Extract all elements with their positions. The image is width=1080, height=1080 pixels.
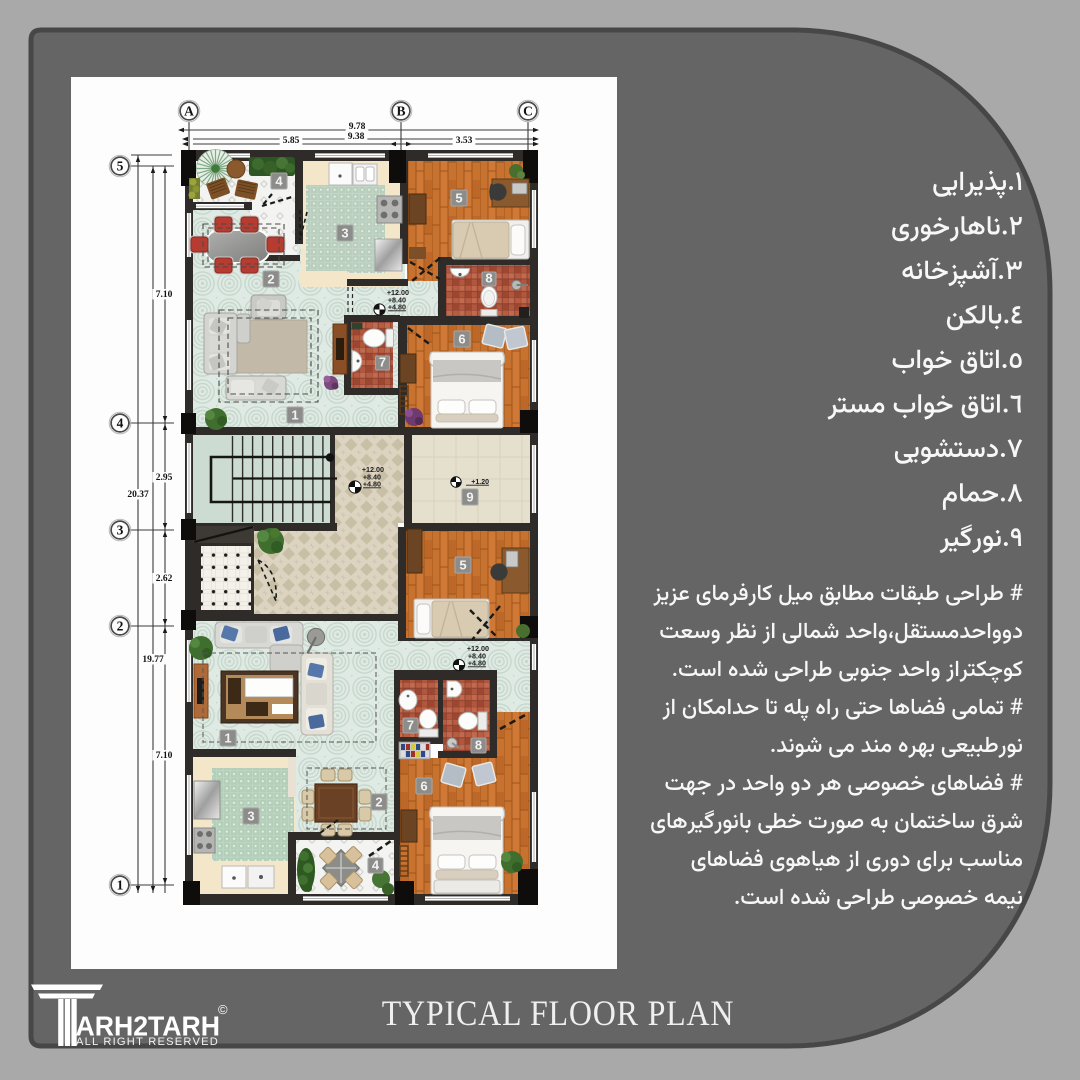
svg-text:2.62: 2.62 (156, 574, 173, 584)
svg-text:©: © (218, 1002, 228, 1017)
svg-text:9.38: 9.38 (348, 132, 365, 142)
svg-text:+4.80: +4.80 (388, 303, 406, 312)
svg-text:3.53: 3.53 (456, 136, 473, 146)
svg-text:6: 6 (458, 332, 465, 347)
svg-text:9: 9 (466, 490, 473, 505)
svg-text:9.78: 9.78 (349, 122, 366, 132)
svg-text:2: 2 (267, 272, 274, 287)
svg-text:ALL RIGHT RESERVED: ALL RIGHT RESERVED (76, 1036, 219, 1048)
svg-text:20.37: 20.37 (127, 490, 149, 500)
svg-text:2: 2 (375, 795, 382, 810)
svg-text:4: 4 (372, 858, 380, 873)
svg-text:8: 8 (475, 738, 482, 753)
svg-text:A: A (184, 104, 194, 119)
svg-text:5: 5 (459, 558, 466, 573)
svg-text:6: 6 (420, 779, 427, 794)
svg-text:3: 3 (341, 226, 348, 241)
svg-text:5: 5 (117, 159, 124, 174)
svg-text:7: 7 (407, 718, 414, 733)
svg-text:1: 1 (117, 878, 124, 893)
svg-text:1: 1 (224, 731, 231, 746)
svg-text:5: 5 (455, 191, 462, 206)
svg-text:8: 8 (485, 271, 492, 286)
svg-text:+4.80: +4.80 (468, 659, 486, 668)
svg-text:5.85: 5.85 (283, 136, 300, 146)
svg-text:3: 3 (247, 809, 254, 824)
svg-text:4: 4 (275, 174, 283, 189)
svg-text:2.95: 2.95 (156, 473, 173, 483)
svg-text:B: B (396, 104, 405, 119)
svg-text:19.77: 19.77 (142, 655, 164, 665)
svg-text:+4.80: +4.80 (363, 480, 381, 489)
svg-text:4: 4 (117, 416, 124, 431)
svg-text:2: 2 (117, 619, 124, 634)
svg-text:1: 1 (291, 408, 298, 423)
svg-text:3: 3 (117, 523, 124, 538)
svg-text:C: C (523, 104, 533, 119)
svg-text:7.10: 7.10 (156, 290, 173, 300)
svg-text:7.10: 7.10 (156, 751, 173, 761)
svg-text:TYPICAL FLOOR PLAN: TYPICAL FLOOR PLAN (382, 994, 735, 1033)
svg-text:7: 7 (379, 355, 386, 370)
